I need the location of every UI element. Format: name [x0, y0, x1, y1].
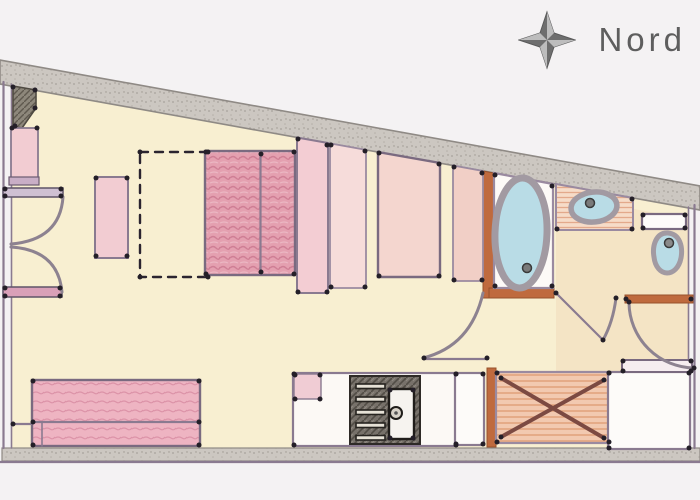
toilet-flush-icon	[665, 239, 674, 248]
compass: Nord	[518, 10, 686, 70]
double-bed	[205, 151, 295, 275]
wc-wall	[625, 295, 693, 303]
floor-plan	[0, 0, 700, 500]
cabinet-left	[11, 128, 38, 179]
niche-wall-top	[3, 188, 63, 197]
wardrobe-column-4	[453, 166, 483, 282]
compass-label: Nord	[598, 21, 686, 59]
south-wall	[2, 448, 700, 461]
appliance-knob-dot	[394, 411, 398, 415]
sofa	[32, 380, 200, 446]
cabinet-middle	[95, 177, 128, 258]
bathtub-drain-icon	[523, 264, 532, 273]
washbasin	[570, 190, 619, 225]
compass-star-icon	[518, 10, 576, 70]
wardrobe-column-3	[378, 152, 440, 277]
wardrobe-column-1	[297, 138, 328, 294]
cabinet-left-base	[9, 177, 39, 185]
washbasin-tap-icon	[586, 199, 595, 208]
bathtub	[493, 177, 549, 289]
cabinet-small	[455, 373, 484, 445]
floor-plan-page: Nord	[0, 0, 700, 500]
niche-wall-bottom	[3, 287, 62, 297]
shaft-wall-left	[487, 368, 496, 447]
kitchen-sink-box	[294, 374, 321, 399]
wc-shelf	[642, 214, 686, 229]
wardrobe-column-2	[330, 143, 366, 288]
closet-bottom-right	[608, 372, 690, 449]
